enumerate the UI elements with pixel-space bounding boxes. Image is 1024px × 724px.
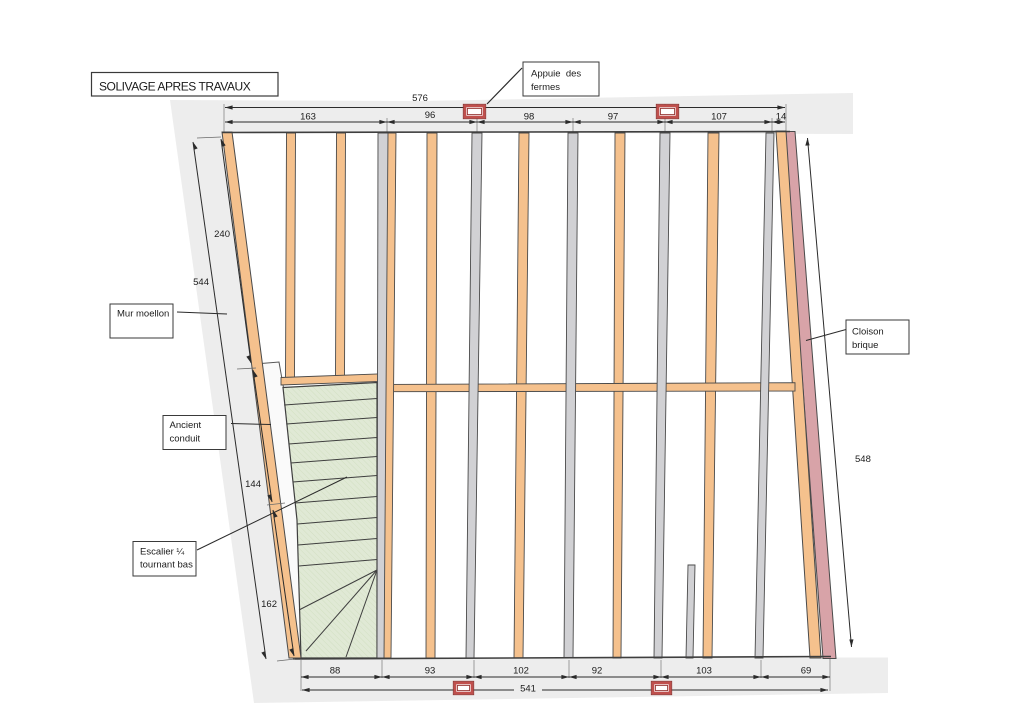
svg-text:102: 102 xyxy=(513,666,529,677)
svg-text:14: 14 xyxy=(776,111,787,122)
svg-text:544: 544 xyxy=(193,277,209,288)
svg-text:541: 541 xyxy=(520,684,536,695)
svg-text:240: 240 xyxy=(214,229,230,240)
svg-text:Ancient: Ancient xyxy=(170,420,202,431)
svg-text:163: 163 xyxy=(300,111,316,122)
svg-text:92: 92 xyxy=(592,666,603,677)
svg-text:conduit: conduit xyxy=(170,434,201,445)
svg-text:Escalier ¼: Escalier ¼ xyxy=(140,546,185,557)
svg-text:Mur moellon: Mur moellon xyxy=(117,309,169,320)
svg-text:69: 69 xyxy=(801,666,812,677)
svg-text:93: 93 xyxy=(425,666,436,677)
svg-text:548: 548 xyxy=(855,454,871,465)
svg-text:SOLIVAGE APRES TRAVAUX: SOLIVAGE APRES TRAVAUX xyxy=(99,80,251,94)
svg-text:Appuie des: Appuie des xyxy=(531,69,581,80)
svg-text:162: 162 xyxy=(261,599,277,610)
svg-text:144: 144 xyxy=(245,479,261,490)
svg-text:107: 107 xyxy=(711,111,727,122)
svg-text:88: 88 xyxy=(330,666,341,677)
svg-text:576: 576 xyxy=(412,93,428,104)
svg-text:brique: brique xyxy=(852,340,878,351)
svg-text:97: 97 xyxy=(608,111,619,122)
svg-text:98: 98 xyxy=(524,111,535,122)
svg-text:103: 103 xyxy=(696,666,712,677)
svg-text:96: 96 xyxy=(425,110,436,121)
svg-text:Cloison: Cloison xyxy=(852,327,884,338)
svg-text:tournant bas: tournant bas xyxy=(140,560,193,571)
svg-text:fermes: fermes xyxy=(531,82,560,93)
